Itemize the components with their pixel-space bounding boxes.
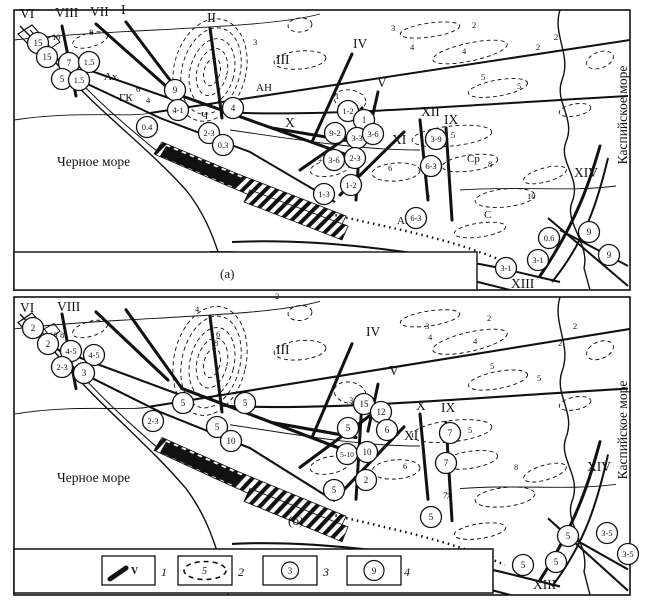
legend: V 1 5 2 3 3 9 4: [14, 549, 493, 593]
value-marker-text: 5: [181, 398, 186, 408]
legend-item-4-symbol-label: 9: [372, 566, 377, 576]
fault-zone-numeral: IV: [366, 324, 380, 339]
fault-name-label: АН: [256, 82, 272, 94]
value-marker: 9: [599, 245, 620, 266]
value-marker: 5: [558, 526, 579, 547]
value-marker-text: 2-3: [56, 362, 67, 372]
fault-zone-numeral: XI: [404, 428, 419, 443]
value-marker: 2: [23, 318, 44, 339]
legend-item-4-index: 4: [404, 565, 410, 579]
fault-name-label: Ах: [104, 71, 118, 83]
value-marker-text: 0.6: [544, 233, 555, 243]
panel-b: (б) Черное море Каспийское море VIVIIIII…: [14, 291, 639, 595]
contour-value-label: 10: [527, 191, 536, 201]
value-marker: 0.3: [213, 135, 234, 156]
value-marker-text: 7: [67, 58, 72, 68]
value-marker: 9: [579, 222, 600, 243]
value-marker-text: 2-3: [147, 416, 158, 426]
value-marker-text: 5: [215, 422, 220, 432]
fault-zone-numeral: IX: [444, 112, 458, 127]
value-marker-text: 2: [31, 323, 36, 333]
figure-two-panel-map: (а) Черное море Каспийское море VIVIIIVI…: [0, 0, 645, 601]
value-marker-text: 1-2: [345, 180, 356, 190]
panel-b-label: (б): [288, 513, 303, 528]
black-sea-label-b: Черное море: [57, 470, 130, 485]
value-marker: 1-2: [341, 175, 362, 196]
value-marker-text: 2: [364, 475, 369, 485]
contour-value-label: 7: [446, 491, 450, 501]
fault-zone-numeral: X: [416, 398, 426, 413]
value-marker-text: 3-5: [622, 549, 633, 559]
value-marker-text: 6: [385, 425, 390, 435]
fault-zone-numeral: V: [389, 363, 399, 378]
fault-zone-numeral: VIII: [55, 5, 79, 20]
value-marker-text: 4: [231, 103, 236, 113]
contour-value-label: 2: [487, 313, 491, 323]
black-sea-label-a: Черное море: [57, 154, 130, 169]
value-marker-text: 10: [363, 447, 373, 457]
value-marker-text: 6-3: [410, 213, 421, 223]
value-marker-text: 3-3: [351, 133, 362, 143]
fault-zone-numeral: XIII: [511, 276, 535, 291]
contour-value-label: 8: [488, 159, 492, 169]
contour-value-label: 6: [388, 163, 392, 173]
value-marker-text: 1-2: [342, 106, 353, 116]
value-marker-text: 1.5: [74, 75, 85, 85]
legend-item-2-index: 2: [238, 565, 244, 579]
panel-a: (а) Черное море Каспийское море VIVIIIVI…: [14, 2, 630, 291]
value-marker: 3-6: [363, 124, 384, 145]
value-marker-text: 2-3: [349, 153, 360, 163]
value-marker: 2-3: [52, 357, 73, 378]
value-marker-text: 4-5: [65, 346, 76, 356]
value-marker-text: 15: [34, 38, 44, 48]
value-marker: 1.5: [69, 70, 90, 91]
map-svg: (а) Черное море Каспийское море VIVIIIVI…: [0, 0, 645, 601]
value-marker: 7: [436, 453, 457, 474]
value-marker-text: 7: [444, 458, 449, 468]
caspian-sea-label-a: Каспийское море: [615, 66, 630, 165]
value-marker-text: 0.3: [218, 140, 229, 150]
contour-value-label: 2: [275, 291, 279, 301]
value-marker: 0.6: [539, 228, 560, 249]
fault-zone-numeral: VIII: [57, 299, 81, 314]
value-marker-text: 5: [521, 560, 526, 570]
fault-zone-numeral: VI: [20, 6, 35, 21]
value-marker: 6: [377, 420, 398, 441]
contour-value-label: 5: [451, 130, 455, 140]
value-marker: 3-1: [496, 258, 517, 279]
value-marker: 10: [221, 431, 242, 452]
panel-a-caption-box: [14, 252, 477, 290]
contour-value-label: 3: [253, 37, 257, 47]
fault-name-label: Ср: [467, 153, 480, 165]
contour-value-label: 8: [214, 338, 218, 348]
value-marker-text: 4-5: [88, 350, 99, 360]
value-marker-text: 12: [377, 407, 386, 417]
contour-value-label: 5: [468, 425, 472, 435]
fault-zone-numeral: I: [121, 2, 126, 17]
contour-value-label: 2: [554, 32, 558, 42]
contour-value-label: 6: [403, 461, 407, 471]
legend-item-3-symbol-label: 3: [288, 566, 293, 576]
value-marker-text: 3-6: [328, 155, 339, 165]
value-marker: 4-1: [168, 100, 189, 121]
value-marker: 5: [513, 555, 534, 576]
value-marker: 9: [165, 80, 186, 101]
contour-value-label: 10: [52, 32, 61, 42]
value-marker: 3-6: [324, 150, 345, 171]
contour-value-label: 5: [490, 361, 494, 371]
contour-value-label: 8: [514, 462, 518, 472]
value-marker: 0.4: [137, 117, 158, 138]
contour-value-label: 8: [60, 330, 64, 340]
value-marker-text: 1-3: [318, 189, 329, 199]
legend-item-3-index: 3: [322, 565, 329, 579]
value-marker-text: 9: [173, 85, 178, 95]
value-marker: 5: [338, 418, 359, 439]
contour-value-label: 6: [136, 84, 140, 94]
fault-zone-numeral: X: [285, 115, 295, 130]
legend-item-2-symbol-label: 5: [202, 566, 207, 577]
fault-zone-numeral: XII: [421, 104, 440, 119]
legend-box: [14, 549, 493, 593]
value-marker-text: 5: [346, 423, 351, 433]
value-marker: 3-9: [426, 129, 447, 150]
value-marker-text: 3-5: [601, 528, 612, 538]
value-marker-text: 5: [60, 74, 65, 84]
contour-value-label: 1: [335, 91, 339, 101]
contour-value-label: 2: [558, 338, 562, 348]
value-marker: 7: [440, 423, 461, 444]
fault-zone-numeral: II: [207, 10, 216, 25]
contour-value-label: 7: [426, 193, 430, 203]
contour-value-label: 2: [536, 42, 540, 52]
fault-zone-numeral: XIII: [533, 577, 557, 592]
value-marker-text: 9: [607, 250, 612, 260]
fault-zone-numeral: XI: [392, 132, 407, 147]
contour-value-label: 8: [89, 27, 93, 37]
value-marker-text: 3: [82, 368, 87, 378]
value-marker: 3-5: [597, 523, 618, 544]
value-marker-text: 1: [362, 115, 367, 125]
value-marker-text: 10: [227, 436, 237, 446]
contour-value-label: 3: [391, 23, 395, 33]
fault-zone-numeral: III: [276, 52, 290, 67]
value-marker: 2-3: [345, 148, 366, 169]
contour-value-label: 3: [425, 321, 429, 331]
fault-name-label: ГК: [119, 92, 133, 104]
value-marker-text: 9: [587, 227, 592, 237]
value-marker-text: 5: [332, 485, 337, 495]
value-marker: 3-1: [528, 250, 549, 271]
value-marker: 5: [546, 552, 567, 573]
value-marker: 3: [74, 363, 95, 384]
value-marker-text: 15: [43, 52, 53, 62]
value-marker: 2: [38, 334, 59, 355]
fault-zone-numeral: VI: [20, 300, 35, 315]
fault-zone-numeral: IX: [441, 400, 455, 415]
contour-value-label: 2: [472, 20, 476, 30]
value-marker: 2: [356, 470, 377, 491]
value-marker-text: 7: [448, 428, 453, 438]
value-marker: 5-10: [337, 444, 358, 465]
value-marker-text: 3-6: [367, 129, 378, 139]
value-marker-text: 6-3: [425, 161, 436, 171]
contour-value-label: 2: [573, 321, 577, 331]
value-marker-text: 3-1: [500, 263, 511, 273]
value-marker: 4: [223, 98, 244, 119]
value-marker: 10: [357, 442, 378, 463]
value-marker-text: 5-10: [340, 450, 354, 459]
panel-a-border: [14, 10, 630, 290]
value-marker: 5: [235, 393, 256, 414]
contour-value-label: 5: [537, 373, 541, 383]
value-marker: 9-2: [325, 123, 346, 144]
fault-zone-numeral: XIV: [587, 459, 611, 474]
contour-value-label: 5: [481, 72, 485, 82]
value-marker-text: 3-9: [430, 134, 441, 144]
value-marker-text: 5: [554, 557, 559, 567]
fault-name-label: Ч: [201, 110, 208, 122]
value-marker-text: 2: [46, 339, 51, 349]
value-marker-text: 3-1: [532, 255, 543, 265]
value-marker-text: 1.5: [84, 57, 95, 67]
legend-item-1-symbol-label: V: [131, 566, 139, 577]
value-marker-text: 9-2: [329, 128, 340, 138]
value-marker: 1-3: [314, 184, 335, 205]
fault-zone-numeral: VII: [90, 4, 109, 19]
panel-a-label: (а): [220, 266, 234, 281]
contour-value-label: 5: [517, 81, 521, 91]
value-marker: 15: [37, 47, 58, 68]
value-marker-text: 5: [566, 531, 571, 541]
fault-zone-numeral: III: [276, 342, 290, 357]
fault-zone-numeral: V: [377, 75, 387, 90]
contour-value-label: 3: [349, 395, 353, 405]
value-marker: 6-3: [406, 208, 427, 229]
legend-item-1-index: 1: [161, 565, 167, 579]
caspian-sea-label-b: Каспийское море: [615, 381, 630, 480]
value-marker: 5: [324, 480, 345, 501]
fault-name-label: С: [484, 209, 491, 221]
value-marker-text: 4-1: [172, 105, 183, 115]
value-marker-text: 5: [243, 398, 248, 408]
value-marker-text: 5: [429, 512, 434, 522]
value-marker: 5: [173, 393, 194, 414]
value-marker: 5: [421, 507, 442, 528]
value-marker: 2-3: [143, 411, 164, 432]
value-marker-text: 2-3: [203, 128, 214, 138]
value-marker-text: 15: [360, 399, 370, 409]
fault-zone-numeral: IV: [353, 36, 367, 51]
value-marker-text: 0.4: [142, 122, 153, 132]
value-marker: 6-3: [421, 156, 442, 177]
value-marker: 3-5: [618, 544, 639, 565]
fault-zone-numeral: XIV: [574, 165, 598, 180]
